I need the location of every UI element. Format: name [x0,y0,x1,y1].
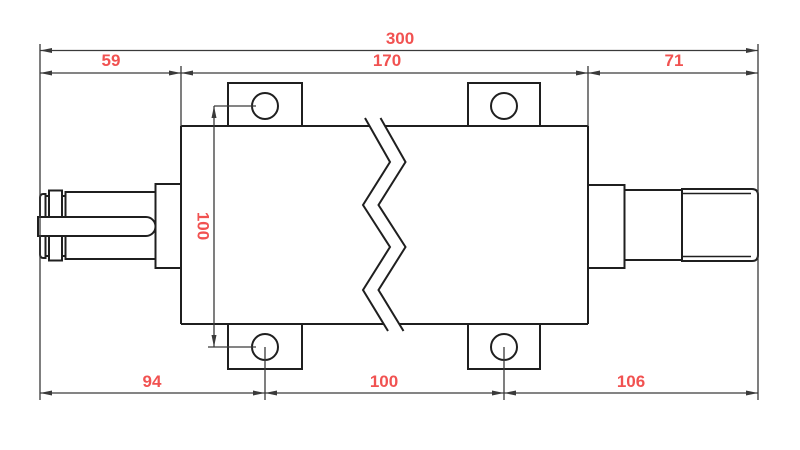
dim-body-length-label: 170 [373,51,401,70]
arrowhead [40,48,52,53]
arrowhead [265,391,277,396]
dim-hole-spacing-horizontal-label: 100 [370,372,398,391]
arrowhead [576,71,588,76]
arrowhead [588,71,600,76]
technical-drawing-canvas: 300 59 170 71 100 94 100 106 [0,0,800,450]
arrowhead [253,391,265,396]
part-layer [38,83,758,369]
dim-right-hole-offset-label: 106 [617,372,645,391]
hole-top-right [491,93,517,119]
dim-left-shaft-length-label: 59 [102,51,121,70]
arrowhead [746,71,758,76]
dim-overall-length-label: 300 [386,29,414,48]
dim-right-shaft-length-label: 71 [665,51,684,70]
dim-hole-spacing-vertical-label: 100 [194,212,213,240]
arrowhead [40,391,52,396]
arrowhead [746,391,758,396]
right-shaft-threaded-end [682,189,758,261]
main-body-fill [182,127,587,323]
keyway-slot [38,217,156,236]
right-shaft-flange [588,185,625,268]
left-shaft-collar [156,184,182,268]
arrowhead [492,391,504,396]
arrowhead [212,106,217,118]
arrowhead [504,391,516,396]
dim-left-hole-offset-label: 94 [143,372,162,391]
arrowhead [169,71,181,76]
arrowhead [746,48,758,53]
right-shaft-cylinder [625,190,683,260]
arrowhead [212,335,217,347]
arrowhead [181,71,193,76]
arrowhead [40,71,52,76]
drawing-page: 300 59 170 71 100 94 100 106 [0,0,800,450]
